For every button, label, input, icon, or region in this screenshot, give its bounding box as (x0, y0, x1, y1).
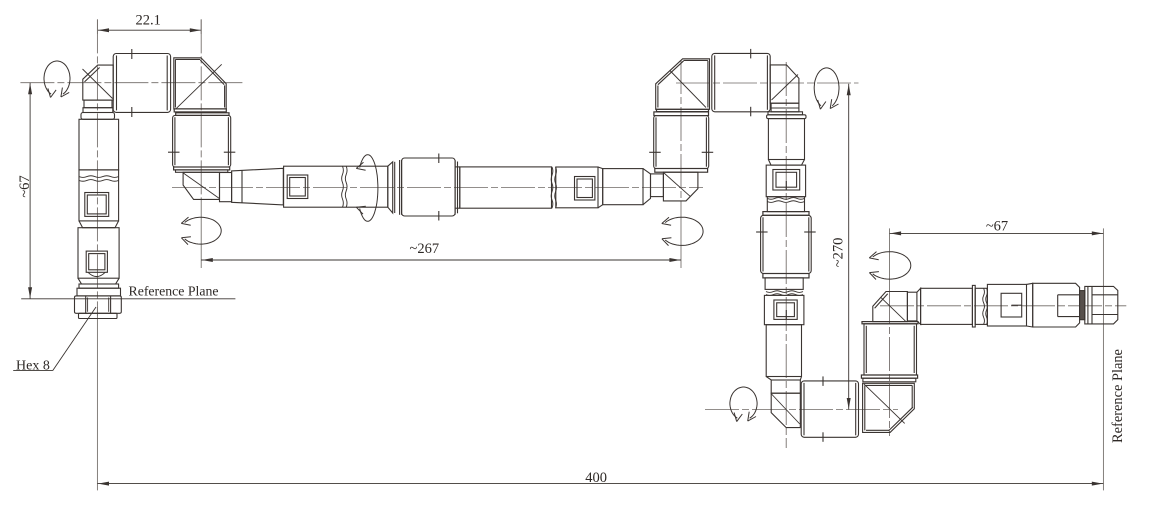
svg-text:~267: ~267 (409, 241, 439, 257)
svg-text:~67: ~67 (986, 218, 1008, 234)
svg-text:Reference Plane: Reference Plane (1110, 349, 1126, 443)
svg-text:~67: ~67 (17, 175, 33, 197)
svg-text:Reference Plane: Reference Plane (129, 283, 219, 298)
svg-text:~270: ~270 (830, 238, 846, 268)
svg-text:400: 400 (585, 470, 607, 486)
svg-text:22.1: 22.1 (136, 12, 161, 28)
